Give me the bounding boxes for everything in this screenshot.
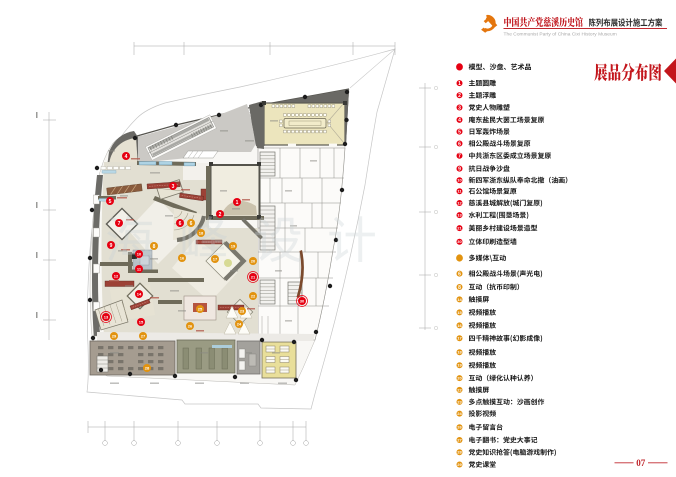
svg-text:2: 2 (219, 212, 222, 218)
svg-text:20: 20 (457, 376, 462, 381)
svg-text:26: 26 (188, 323, 193, 328)
svg-text:21: 21 (251, 274, 256, 279)
svg-text:10: 10 (457, 178, 462, 183)
svg-text:8: 8 (458, 285, 461, 291)
svg-text:4: 4 (125, 154, 128, 160)
svg-text:19: 19 (231, 243, 236, 248)
svg-text:29: 29 (112, 333, 117, 338)
svg-text:28: 28 (145, 365, 150, 370)
svg-text:18: 18 (457, 350, 462, 355)
svg-text:5: 5 (109, 199, 112, 205)
svg-text:13: 13 (457, 213, 462, 218)
svg-text:25: 25 (198, 306, 203, 311)
svg-text:14: 14 (457, 297, 462, 302)
svg-text:22: 22 (251, 293, 256, 298)
svg-text:9: 9 (110, 243, 113, 249)
svg-text:18: 18 (199, 230, 204, 235)
svg-text:6: 6 (179, 221, 182, 227)
svg-text:22: 22 (457, 387, 462, 392)
svg-text:27: 27 (457, 437, 462, 442)
svg-text:7: 7 (458, 154, 461, 160)
svg-text:5: 5 (458, 129, 461, 135)
svg-text:23: 23 (240, 308, 245, 313)
svg-text:10: 10 (137, 251, 142, 256)
svg-text:8: 8 (153, 244, 156, 250)
svg-text:6: 6 (190, 221, 193, 227)
svg-text:16: 16 (457, 323, 462, 328)
svg-text:30: 30 (300, 298, 305, 303)
svg-text:3: 3 (458, 105, 461, 111)
svg-text:27: 27 (141, 333, 146, 338)
svg-text:6: 6 (458, 271, 461, 277)
svg-text:1: 1 (236, 200, 239, 206)
svg-text:26: 26 (457, 425, 462, 430)
svg-text:4: 4 (458, 118, 461, 124)
svg-text:28: 28 (457, 450, 462, 455)
svg-text:21: 21 (457, 226, 462, 231)
svg-text:23: 23 (457, 399, 462, 404)
svg-text:30: 30 (457, 239, 462, 244)
svg-text:12: 12 (457, 200, 462, 205)
svg-text:7: 7 (118, 221, 121, 227)
svg-text:The Communist Party of China C: The Communist Party of China Cixi Histor… (504, 31, 617, 37)
svg-text:20: 20 (251, 258, 256, 263)
svg-text:14: 14 (137, 291, 142, 296)
svg-text:24: 24 (237, 321, 242, 326)
svg-text:17: 17 (213, 256, 218, 261)
svg-text:13: 13 (104, 314, 109, 319)
svg-text:16: 16 (180, 255, 185, 260)
svg-text:29: 29 (457, 462, 462, 467)
svg-text:12: 12 (114, 273, 119, 278)
svg-text:1: 1 (458, 81, 461, 87)
svg-text:3: 3 (172, 184, 175, 190)
svg-text:6: 6 (458, 141, 461, 147)
svg-text:07: 07 (636, 458, 646, 468)
svg-text:2: 2 (458, 93, 461, 99)
svg-text:19: 19 (457, 363, 462, 368)
svg-text:24: 24 (457, 411, 462, 416)
svg-text:15: 15 (139, 319, 144, 324)
svg-text:17: 17 (457, 336, 462, 341)
svg-text:9: 9 (458, 166, 461, 172)
svg-text:15: 15 (457, 310, 462, 315)
